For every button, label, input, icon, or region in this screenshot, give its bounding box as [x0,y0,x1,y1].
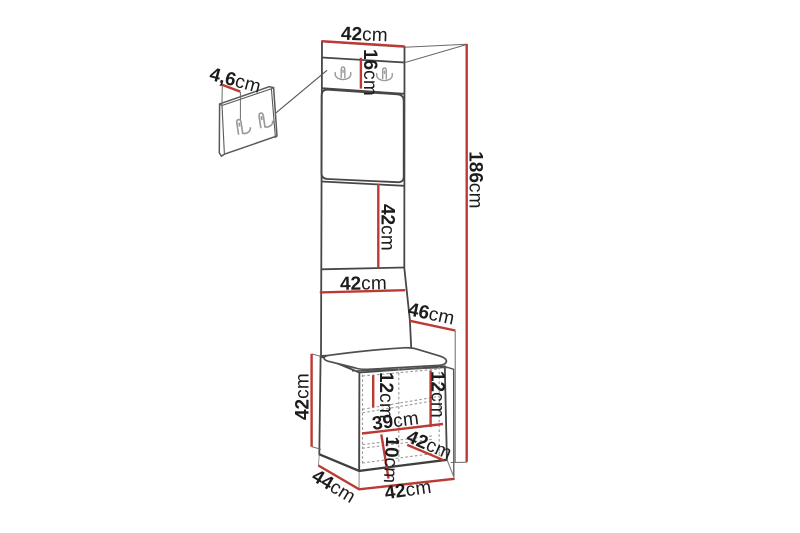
svg-text:10cm: 10cm [379,436,402,484]
svg-text:42cm: 42cm [377,204,398,251]
svg-text:12cm: 12cm [427,371,448,418]
svg-text:186cm: 186cm [464,151,485,209]
svg-text:4,6cm: 4,6cm [207,64,263,98]
svg-text:46cm: 46cm [406,299,456,329]
svg-text:42cm: 42cm [341,24,389,47]
svg-text:42cm: 42cm [340,273,387,295]
svg-text:16cm: 16cm [359,49,380,96]
svg-text:42cm: 42cm [293,373,314,420]
